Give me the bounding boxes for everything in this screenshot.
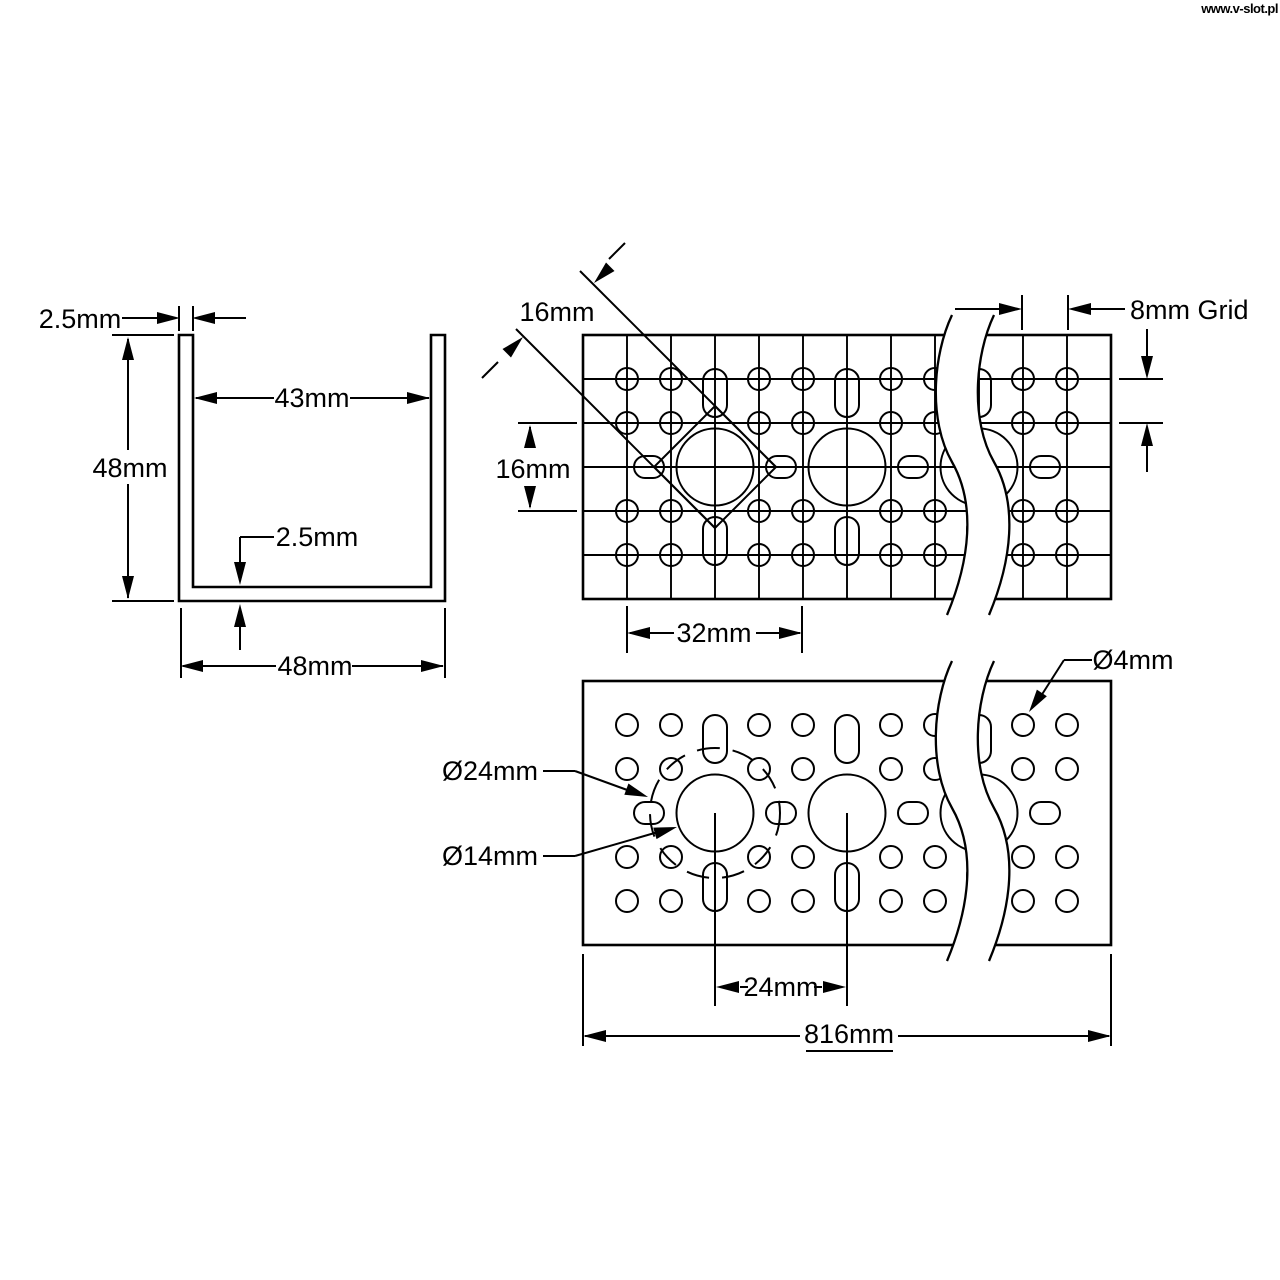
callout-large-hole-label: Ø14mm	[442, 841, 538, 871]
callout-small-hole-label: Ø4mm	[1093, 645, 1174, 675]
dimension-inner-width-label: 43mm	[274, 383, 349, 413]
dimension-height-label: 48mm	[92, 453, 167, 483]
dimension-wall-thickness-label: 2.5mm	[39, 304, 122, 334]
drawing-background	[0, 0, 1280, 1280]
dimension-grid-pitch-label: 8mm Grid	[1130, 295, 1249, 325]
dimension-floor-thickness-label: 2.5mm	[276, 522, 359, 552]
dimension-square-pocket-label: 16mm	[519, 297, 594, 327]
technical-drawing-canvas: 2.5mm 43mm 48mm 2.5mm 48mm 16mm 16mm 8mm…	[0, 0, 1280, 1280]
watermark-url: www.v-slot.pl	[1200, 1, 1278, 16]
dimension-column-spacing-label: 32mm	[676, 618, 751, 648]
dimension-overall-length-label: 816mm	[804, 1019, 894, 1049]
u-channel-drawing: 2.5mm 43mm 48mm 2.5mm 48mm 16mm 16mm 8mm…	[0, 0, 1280, 1280]
callout-bolt-circle-label: Ø24mm	[442, 756, 538, 786]
dimension-hole-spacing-label: 24mm	[743, 972, 818, 1002]
dimension-outer-width-label: 48mm	[277, 651, 352, 681]
dimension-row-spacing-label: 16mm	[495, 454, 570, 484]
